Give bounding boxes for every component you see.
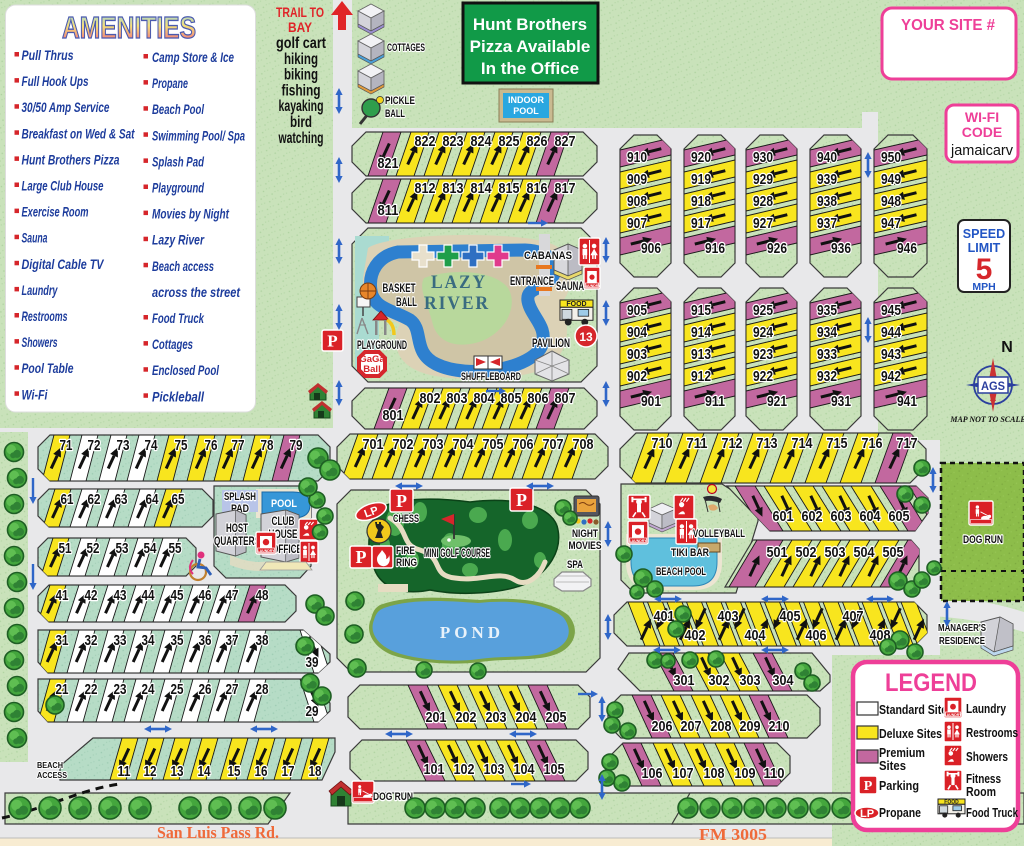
svg-text:713: 713 — [757, 435, 778, 452]
svg-text:Camp Store & Ice: Camp Store & Ice — [152, 49, 234, 65]
svg-text:801: 801 — [383, 407, 404, 424]
svg-text:P: P — [327, 331, 337, 350]
svg-text:MOVIES: MOVIES — [569, 540, 602, 552]
svg-text:63: 63 — [115, 492, 128, 508]
svg-text:18: 18 — [309, 764, 322, 780]
svg-text:34: 34 — [142, 633, 155, 649]
svg-text:405: 405 — [780, 608, 801, 625]
svg-text:805: 805 — [501, 390, 522, 407]
svg-text:bird: bird — [290, 114, 312, 131]
svg-text:17: 17 — [282, 764, 295, 780]
svg-text:936: 936 — [831, 241, 851, 257]
svg-text:across the street: across the street — [152, 284, 241, 300]
svg-text:32: 32 — [85, 633, 98, 649]
svg-text:941: 941 — [897, 394, 917, 410]
svg-text:kayaking: kayaking — [279, 98, 324, 115]
svg-text:712: 712 — [722, 435, 743, 452]
svg-text:942: 942 — [881, 369, 901, 385]
svg-text:watching: watching — [278, 130, 324, 147]
svg-text:824: 824 — [471, 133, 493, 150]
svg-text:Hunt Brothers: Hunt Brothers — [473, 15, 587, 34]
svg-text:In the Office: In the Office — [481, 59, 579, 78]
svg-text:104: 104 — [514, 761, 536, 778]
svg-text:505: 505 — [883, 544, 904, 561]
svg-text:37: 37 — [226, 633, 239, 649]
svg-text:Laundry: Laundry — [966, 702, 1006, 716]
svg-text:707: 707 — [543, 436, 564, 453]
svg-text:907: 907 — [627, 216, 647, 232]
svg-text:Exercise Room: Exercise Room — [22, 204, 89, 220]
svg-text:817: 817 — [555, 180, 576, 197]
svg-text:807: 807 — [555, 390, 576, 407]
svg-text:jamaicarv: jamaicarv — [950, 143, 1014, 159]
svg-text:BEACH: BEACH — [37, 760, 63, 770]
svg-text:TRAIL TO: TRAIL TO — [276, 4, 324, 20]
svg-text:303: 303 — [740, 672, 761, 689]
svg-text:823: 823 — [443, 133, 464, 150]
svg-text:102: 102 — [454, 761, 475, 778]
svg-text:13: 13 — [579, 330, 593, 344]
svg-text:918: 918 — [691, 194, 711, 210]
svg-text:MPH: MPH — [972, 281, 995, 293]
svg-text:714: 714 — [792, 435, 814, 452]
svg-text:202: 202 — [456, 709, 477, 726]
svg-text:909: 909 — [627, 172, 647, 188]
svg-text:943: 943 — [881, 347, 901, 363]
svg-text:71: 71 — [60, 438, 73, 454]
svg-text:54: 54 — [144, 541, 157, 557]
svg-text:CODE: CODE — [962, 124, 1002, 140]
svg-text:65: 65 — [172, 492, 185, 508]
svg-text:CHESS: CHESS — [393, 513, 419, 525]
svg-text:Playground: Playground — [152, 180, 204, 196]
svg-text:940: 940 — [817, 150, 837, 166]
svg-text:26: 26 — [199, 682, 212, 698]
svg-text:Parking: Parking — [879, 779, 919, 793]
svg-text:BEACH POOL: BEACH POOL — [656, 566, 706, 578]
svg-text:Large Club House: Large Club House — [22, 178, 104, 194]
svg-text:28: 28 — [256, 682, 269, 698]
svg-text:Showers: Showers — [22, 334, 58, 350]
svg-text:72: 72 — [88, 438, 101, 454]
svg-text:Standard Sites: Standard Sites — [879, 703, 953, 717]
svg-text:945: 945 — [881, 303, 901, 319]
svg-text:902: 902 — [627, 369, 647, 385]
svg-text:Ball: Ball — [363, 364, 380, 375]
svg-text:927: 927 — [753, 216, 773, 232]
svg-text:COTTAGES: COTTAGES — [387, 42, 425, 54]
svg-text:706: 706 — [513, 436, 534, 453]
svg-text:62: 62 — [88, 492, 101, 508]
svg-text:921: 921 — [767, 394, 787, 410]
svg-text:Restrooms: Restrooms — [966, 726, 1018, 740]
svg-text:210: 210 — [769, 718, 790, 735]
svg-text:24: 24 — [142, 682, 155, 698]
svg-text:POOL: POOL — [513, 106, 539, 116]
svg-text:Splash Pad: Splash Pad — [152, 153, 204, 169]
svg-text:73: 73 — [117, 438, 130, 454]
svg-text:Full Hook Ups: Full Hook Ups — [22, 73, 89, 89]
svg-text:503: 503 — [825, 544, 846, 561]
svg-text:906: 906 — [641, 241, 661, 257]
svg-text:602: 602 — [802, 508, 823, 525]
svg-text:Cottages: Cottages — [152, 336, 193, 352]
svg-text:703: 703 — [423, 436, 444, 453]
svg-text:WI-FI: WI-FI — [965, 109, 999, 125]
svg-text:ENTRANCE: ENTRANCE — [510, 276, 554, 288]
svg-text:PICKLE: PICKLE — [385, 95, 415, 107]
svg-text:P: P — [864, 779, 873, 794]
svg-text:43: 43 — [114, 588, 127, 604]
svg-text:31: 31 — [56, 633, 69, 649]
svg-text:27: 27 — [226, 682, 239, 698]
svg-text:903: 903 — [627, 347, 647, 363]
svg-text:BASKET: BASKET — [383, 283, 416, 295]
svg-text:914: 914 — [691, 325, 711, 341]
svg-text:811: 811 — [378, 202, 399, 219]
svg-text:BALL: BALL — [385, 108, 405, 120]
svg-text:715: 715 — [827, 435, 848, 452]
svg-text:947: 947 — [881, 216, 901, 232]
svg-text:Showers: Showers — [966, 750, 1008, 764]
svg-text:79: 79 — [290, 438, 303, 454]
svg-text:Deluxe Sites: Deluxe Sites — [879, 727, 942, 741]
svg-text:825: 825 — [499, 133, 520, 150]
svg-text:AMENITIES: AMENITIES — [62, 10, 196, 45]
svg-text:BAY: BAY — [288, 19, 313, 35]
svg-text:PAVILION: PAVILION — [532, 338, 570, 350]
svg-text:47: 47 — [226, 588, 239, 604]
svg-text:201: 201 — [426, 709, 447, 726]
svg-text:702: 702 — [393, 436, 414, 453]
svg-text:406: 406 — [806, 627, 827, 644]
svg-text:25: 25 — [171, 682, 184, 698]
svg-text:904: 904 — [627, 325, 647, 341]
svg-text:206: 206 — [652, 718, 673, 735]
svg-text:Restrooms: Restrooms — [22, 308, 68, 324]
svg-text:934: 934 — [817, 325, 837, 341]
svg-text:Food Truck: Food Truck — [152, 310, 205, 326]
svg-text:FIRE: FIRE — [396, 545, 415, 557]
svg-text:Pizza Available: Pizza Available — [470, 37, 591, 56]
svg-text:944: 944 — [881, 325, 901, 341]
svg-text:813: 813 — [443, 180, 464, 197]
svg-text:55: 55 — [169, 541, 182, 557]
svg-text:208: 208 — [711, 718, 732, 735]
svg-text:827: 827 — [555, 133, 576, 150]
svg-text:San Luis Pass Rd.: San Luis Pass Rd. — [157, 823, 279, 842]
svg-text:POND: POND — [440, 623, 504, 642]
svg-text:924: 924 — [753, 325, 773, 341]
svg-text:704: 704 — [453, 436, 475, 453]
svg-text:Room: Room — [966, 785, 996, 799]
svg-text:301: 301 — [674, 672, 695, 689]
svg-text:CABANAS: CABANAS — [524, 250, 572, 262]
svg-text:22: 22 — [85, 682, 98, 698]
svg-text:CLUB: CLUB — [272, 516, 295, 528]
svg-text:304: 304 — [773, 672, 795, 689]
svg-text:604: 604 — [860, 508, 882, 525]
svg-text:205: 205 — [546, 709, 567, 726]
svg-text:Fitness: Fitness — [966, 772, 1001, 786]
svg-text:911: 911 — [705, 394, 725, 410]
svg-text:78: 78 — [261, 438, 274, 454]
svg-text:109: 109 — [735, 765, 756, 782]
svg-text:928: 928 — [753, 194, 773, 210]
svg-text:33: 33 — [114, 633, 127, 649]
svg-text:814: 814 — [471, 180, 493, 197]
svg-text:44: 44 — [142, 588, 155, 604]
svg-text:711: 711 — [687, 435, 708, 452]
svg-text:915: 915 — [691, 303, 711, 319]
svg-text:105: 105 — [544, 761, 565, 778]
svg-text:SPLASH: SPLASH — [224, 491, 256, 503]
svg-text:46: 46 — [199, 588, 212, 604]
svg-text:RESIDENCE: RESIDENCE — [939, 635, 985, 647]
svg-text:11: 11 — [118, 764, 131, 780]
svg-text:P: P — [356, 547, 367, 567]
svg-text:YOUR SITE #: YOUR SITE # — [901, 17, 995, 34]
svg-text:Propane: Propane — [879, 806, 921, 820]
svg-text:407: 407 — [843, 608, 864, 625]
svg-text:51: 51 — [59, 541, 72, 557]
svg-text:Sauna: Sauna — [22, 230, 48, 246]
svg-text:P: P — [396, 491, 407, 511]
svg-text:77: 77 — [232, 438, 245, 454]
svg-text:41: 41 — [56, 588, 69, 604]
svg-text:61: 61 — [61, 492, 74, 508]
svg-text:FM 3005: FM 3005 — [699, 825, 767, 844]
svg-text:75: 75 — [175, 438, 188, 454]
svg-text:950: 950 — [881, 150, 901, 166]
svg-text:LEGEND: LEGEND — [885, 669, 977, 697]
svg-text:938: 938 — [817, 194, 837, 210]
svg-text:LAUNDRY: LAUNDRY — [630, 539, 648, 543]
svg-text:821: 821 — [378, 155, 399, 172]
svg-text:908: 908 — [627, 194, 647, 210]
svg-text:110: 110 — [764, 765, 785, 782]
svg-text:601: 601 — [773, 508, 794, 525]
svg-text:931: 931 — [831, 394, 851, 410]
svg-text:939: 939 — [817, 172, 837, 188]
svg-text:Beach Pool: Beach Pool — [152, 101, 205, 117]
svg-text:LP: LP — [860, 808, 874, 820]
svg-text:502: 502 — [796, 544, 817, 561]
svg-text:Beach access: Beach access — [152, 258, 214, 274]
svg-text:N: N — [1001, 339, 1013, 356]
svg-text:Food Truck: Food Truck — [966, 806, 1018, 820]
svg-text:937: 937 — [817, 216, 837, 232]
svg-text:29: 29 — [306, 704, 319, 720]
svg-text:53: 53 — [116, 541, 129, 557]
svg-text:404: 404 — [745, 627, 767, 644]
svg-text:804: 804 — [474, 390, 496, 407]
svg-text:42: 42 — [85, 588, 98, 604]
svg-text:708: 708 — [573, 436, 594, 453]
svg-text:BALL: BALL — [396, 297, 417, 309]
svg-text:822: 822 — [415, 133, 436, 150]
svg-text:13: 13 — [171, 764, 184, 780]
svg-text:925: 925 — [753, 303, 773, 319]
svg-text:919: 919 — [691, 172, 711, 188]
svg-text:LAUNDRY: LAUNDRY — [584, 284, 602, 288]
svg-text:207: 207 — [681, 718, 702, 735]
svg-text:76: 76 — [205, 438, 218, 454]
svg-text:LAZY: LAZY — [431, 272, 487, 293]
svg-text:fishing: fishing — [282, 82, 321, 99]
svg-text:AGS: AGS — [981, 379, 1005, 393]
svg-text:917: 917 — [691, 216, 711, 232]
svg-text:815: 815 — [499, 180, 520, 197]
svg-text:948: 948 — [881, 194, 901, 210]
svg-text:MINI GOLF COURSE: MINI GOLF COURSE — [424, 546, 490, 560]
svg-text:916: 916 — [705, 241, 725, 257]
svg-text:302: 302 — [709, 672, 730, 689]
svg-text:MAP NOT TO SCALE: MAP NOT TO SCALE — [949, 415, 1024, 424]
svg-text:48: 48 — [256, 588, 269, 604]
svg-text:930: 930 — [753, 150, 773, 166]
svg-text:VOLLEYBALL: VOLLEYBALL — [693, 528, 745, 540]
svg-text:52: 52 — [87, 541, 100, 557]
svg-text:12: 12 — [144, 764, 157, 780]
svg-text:hiking: hiking — [284, 51, 318, 68]
svg-text:Breakfast on Wed & Sat: Breakfast on Wed & Sat — [22, 125, 136, 141]
svg-text:103: 103 — [484, 761, 505, 778]
svg-text:Wi-Fi: Wi-Fi — [22, 386, 49, 402]
svg-text:204: 204 — [516, 709, 538, 726]
svg-text:30/50 Amp Service: 30/50 Amp Service — [22, 99, 110, 115]
svg-text:Sites: Sites — [879, 759, 906, 773]
svg-text:203: 203 — [486, 709, 507, 726]
svg-text:Movies by Night: Movies by Night — [152, 206, 230, 222]
svg-text:209: 209 — [740, 718, 761, 735]
svg-text:64: 64 — [146, 492, 159, 508]
svg-text:901: 901 — [641, 394, 661, 410]
svg-text:816: 816 — [527, 180, 548, 197]
svg-text:106: 106 — [642, 765, 663, 782]
svg-text:SAUNA: SAUNA — [556, 281, 584, 293]
svg-text:605: 605 — [889, 508, 910, 525]
svg-text:603: 603 — [831, 508, 852, 525]
svg-text:39: 39 — [306, 655, 319, 671]
svg-text:Lazy River: Lazy River — [152, 232, 205, 248]
svg-text:717: 717 — [897, 435, 918, 452]
svg-text:Propane: Propane — [152, 75, 188, 91]
svg-text:Digital Cable TV: Digital Cable TV — [22, 256, 105, 272]
svg-text:Pickleball: Pickleball — [152, 388, 205, 404]
svg-text:108: 108 — [704, 765, 725, 782]
svg-text:Enclosed Pool: Enclosed Pool — [152, 362, 220, 378]
svg-text:RIVER: RIVER — [424, 293, 490, 314]
svg-text:LAUNDRY: LAUNDRY — [258, 549, 276, 553]
svg-text:403: 403 — [718, 608, 739, 625]
svg-text:705: 705 — [483, 436, 504, 453]
svg-text:922: 922 — [753, 369, 773, 385]
svg-text:806: 806 — [528, 390, 549, 407]
svg-text:ACCESS: ACCESS — [37, 770, 67, 780]
svg-text:SPEED: SPEED — [963, 227, 1005, 241]
svg-text:932: 932 — [817, 369, 837, 385]
svg-text:905: 905 — [627, 303, 647, 319]
svg-text:HOST: HOST — [226, 523, 248, 535]
svg-text:DOG RUN: DOG RUN — [963, 534, 1003, 546]
svg-text:812: 812 — [415, 180, 436, 197]
svg-text:920: 920 — [691, 150, 711, 166]
svg-text:biking: biking — [284, 67, 318, 84]
svg-text:910: 910 — [627, 150, 647, 166]
svg-text:15: 15 — [228, 764, 241, 780]
svg-text:POOL: POOL — [271, 498, 297, 510]
svg-text:45: 45 — [171, 588, 184, 604]
svg-text:35: 35 — [171, 633, 184, 649]
svg-text:INDOOR: INDOOR — [508, 95, 545, 105]
svg-text:LAUNDRY: LAUNDRY — [945, 713, 963, 717]
svg-text:36: 36 — [199, 633, 212, 649]
svg-text:74: 74 — [145, 438, 158, 454]
svg-text:MANAGER'S: MANAGER'S — [938, 622, 986, 634]
svg-text:38: 38 — [256, 633, 269, 649]
svg-text:golf cart: golf cart — [276, 35, 326, 52]
svg-text:701: 701 — [363, 436, 384, 453]
svg-text:803: 803 — [447, 390, 468, 407]
svg-text:P: P — [516, 490, 527, 510]
svg-text:935: 935 — [817, 303, 837, 319]
svg-text:716: 716 — [862, 435, 883, 452]
svg-text:912: 912 — [691, 369, 711, 385]
svg-text:SPA: SPA — [567, 559, 583, 571]
svg-text:107: 107 — [673, 765, 694, 782]
svg-text:Laundry: Laundry — [22, 282, 59, 298]
svg-text:101: 101 — [424, 761, 445, 778]
svg-text:RING: RING — [396, 557, 417, 569]
svg-text:402: 402 — [685, 627, 706, 644]
svg-text:Pool Table: Pool Table — [22, 360, 74, 376]
svg-text:913: 913 — [691, 347, 711, 363]
svg-text:Hunt Brothers Pizza: Hunt Brothers Pizza — [22, 151, 120, 167]
svg-text:Pull Thrus: Pull Thrus — [22, 47, 74, 63]
svg-text:Swimming Pool/ Spa: Swimming Pool/ Spa — [152, 127, 245, 143]
svg-text:923: 923 — [753, 347, 773, 363]
svg-text:23: 23 — [114, 682, 127, 698]
svg-text:TIKI BAR: TIKI BAR — [671, 547, 709, 559]
svg-text:710: 710 — [652, 435, 673, 452]
svg-text:933: 933 — [817, 347, 837, 363]
svg-text:926: 926 — [767, 241, 787, 257]
svg-text:Premium: Premium — [879, 746, 925, 760]
svg-text:QUARTERS: QUARTERS — [214, 536, 260, 548]
svg-text:826: 826 — [527, 133, 548, 150]
svg-text:929: 929 — [753, 172, 773, 188]
svg-text:946: 946 — [897, 241, 917, 257]
svg-text:802: 802 — [420, 390, 441, 407]
svg-text:501: 501 — [767, 544, 788, 561]
svg-text:16: 16 — [255, 764, 268, 780]
svg-text:SHUFFLEBOARD: SHUFFLEBOARD — [461, 371, 521, 383]
svg-text:14: 14 — [198, 764, 211, 780]
svg-text:949: 949 — [881, 172, 901, 188]
svg-text:504: 504 — [854, 544, 876, 561]
svg-text:NIGHT: NIGHT — [572, 528, 598, 540]
